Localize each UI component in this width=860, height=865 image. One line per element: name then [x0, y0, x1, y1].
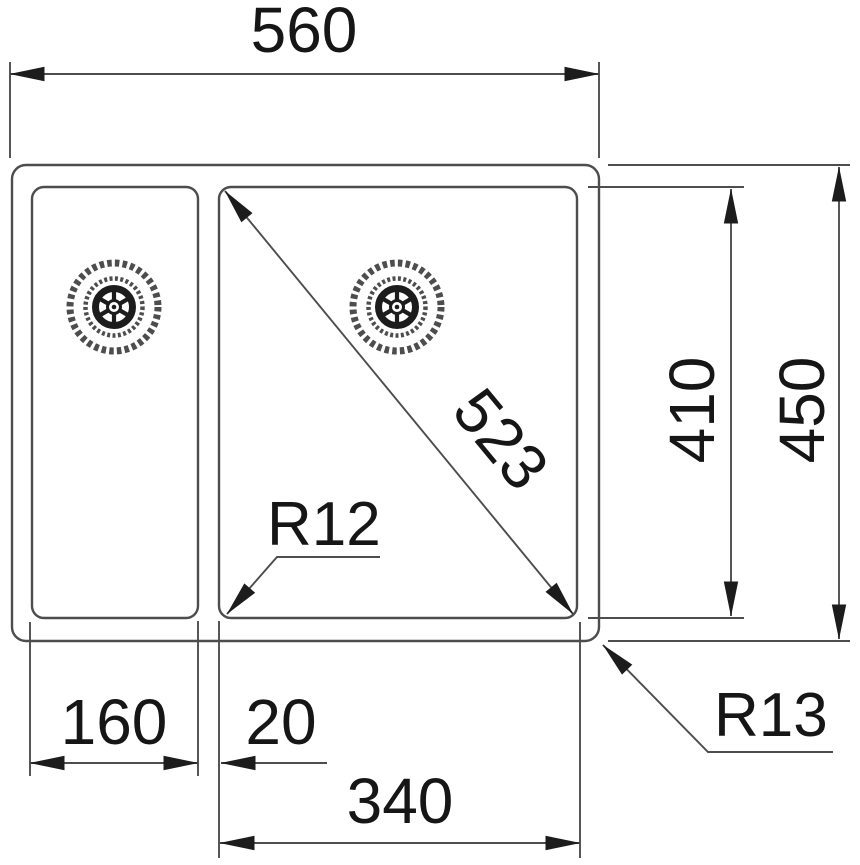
- radius-inner-label: R12: [267, 490, 381, 559]
- dim-overall-width-label: 560: [251, 0, 358, 66]
- leader-line-bowl-corner-radius: [227, 557, 380, 614]
- drain-strainer-icon: [70, 263, 158, 351]
- radius-outer-label: R13: [714, 681, 828, 750]
- dim-bowl-depth-label: 410: [656, 357, 728, 464]
- dim-right-bowl-width-label: 340: [347, 765, 454, 837]
- drain-strainer-icon: [353, 263, 441, 351]
- dim-bowl-diagonal-label: 523: [439, 375, 562, 503]
- dim-left-bowl-width-label: 160: [61, 686, 168, 758]
- dim-gap-label: 20: [245, 686, 316, 758]
- dim-overall-depth-label: 450: [766, 357, 838, 464]
- drawing-canvas: 560 410 450 523 R12 R13 160 20 340: [0, 0, 860, 860]
- sink-dimension-drawing: 560 410 450 523 R12 R13 160 20 340: [0, 0, 860, 860]
- left-bowl-outline: [32, 187, 198, 618]
